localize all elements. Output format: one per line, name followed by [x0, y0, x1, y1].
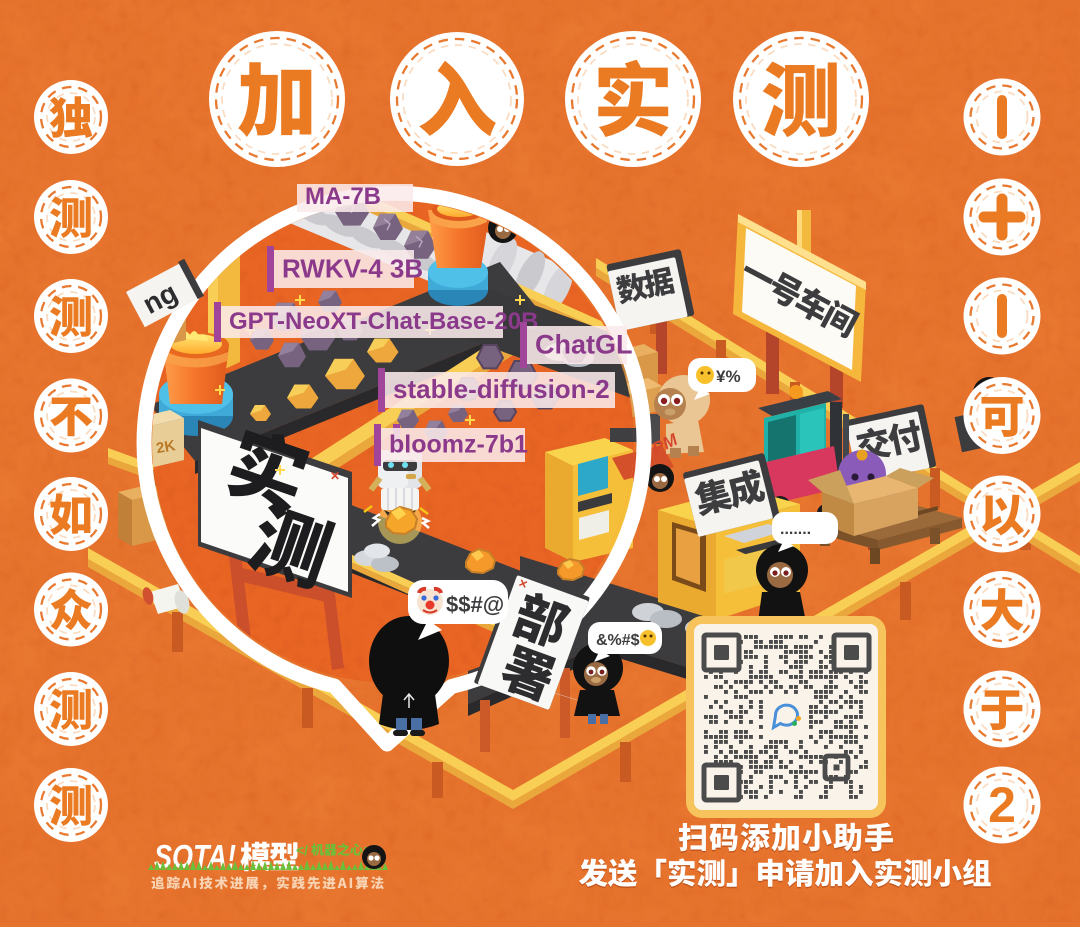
svg-text:RWKV-4 3B: RWKV-4 3B: [282, 253, 423, 283]
svg-text:ChatGL: ChatGL: [535, 329, 633, 359]
svg-text:bloomz-7b1: bloomz-7b1: [389, 430, 528, 458]
svg-text:$$#@: $$#@: [446, 592, 504, 617]
svg-text:MA-7B: MA-7B: [305, 183, 381, 210]
svg-text:GPT-NeoXT-Chat-Base-20B: GPT-NeoXT-Chat-Base-20B: [229, 308, 538, 335]
svg-text:stable-diffusion-2: stable-diffusion-2: [393, 374, 610, 404]
svg-text:2K: 2K: [155, 437, 177, 457]
svg-text:&%#$: &%#$: [596, 632, 640, 649]
svg-text:✕: ✕: [330, 469, 340, 483]
svg-text:.......: .......: [780, 521, 811, 538]
svg-text:¥%: ¥%: [716, 367, 741, 386]
svg-text:2: 2: [988, 777, 1016, 833]
svg-text:</: </: [296, 842, 308, 858]
